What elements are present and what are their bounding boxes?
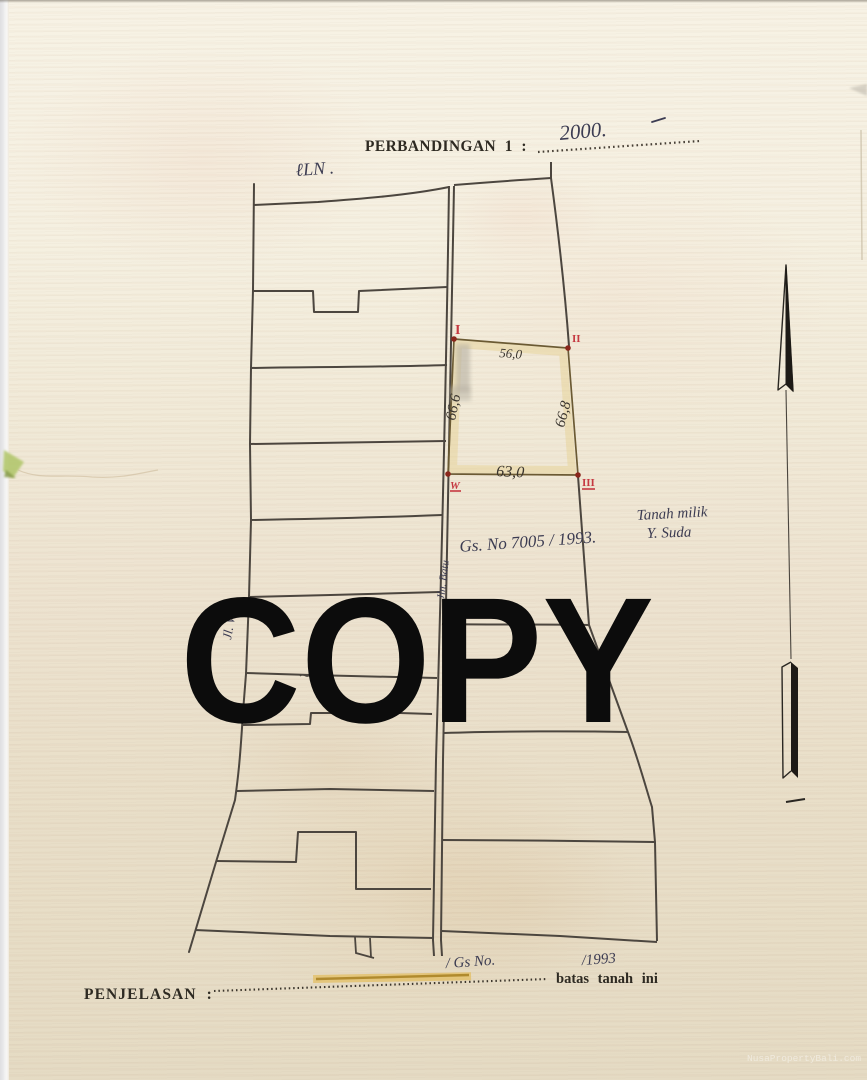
svg-text:NusaPropertyBali.com: NusaPropertyBali.com (747, 1053, 861, 1064)
svg-text:66,6: 66,6 (443, 392, 464, 421)
svg-text:ℓLN .: ℓLN . (295, 157, 335, 180)
svg-text:PERBANDINGAN 1 :: PERBANDINGAN 1 : (365, 138, 527, 155)
svg-text:Tanah milik: Tanah milik (636, 504, 708, 524)
svg-text:II: II (572, 333, 581, 345)
svg-text:2000.: 2000. (558, 117, 607, 145)
svg-text:/1993: /1993 (580, 951, 616, 969)
svg-text:batas tanah ini: batas tanah ini (556, 971, 658, 987)
svg-text:Y. Suda: Y. Suda (647, 524, 692, 542)
svg-text:/ Gs No.: / Gs No. (444, 953, 496, 972)
svg-text:COPY: COPY (180, 560, 654, 760)
svg-text:PENJELASAN :: PENJELASAN : (84, 986, 213, 1003)
svg-text:63,0: 63,0 (496, 463, 525, 481)
svg-text:III: III (582, 477, 595, 489)
svg-text:56,0: 56,0 (499, 345, 523, 362)
svg-text:Gs. No 7005 / 1993.: Gs. No 7005 / 1993. (459, 527, 597, 556)
svg-text:I: I (455, 323, 460, 338)
